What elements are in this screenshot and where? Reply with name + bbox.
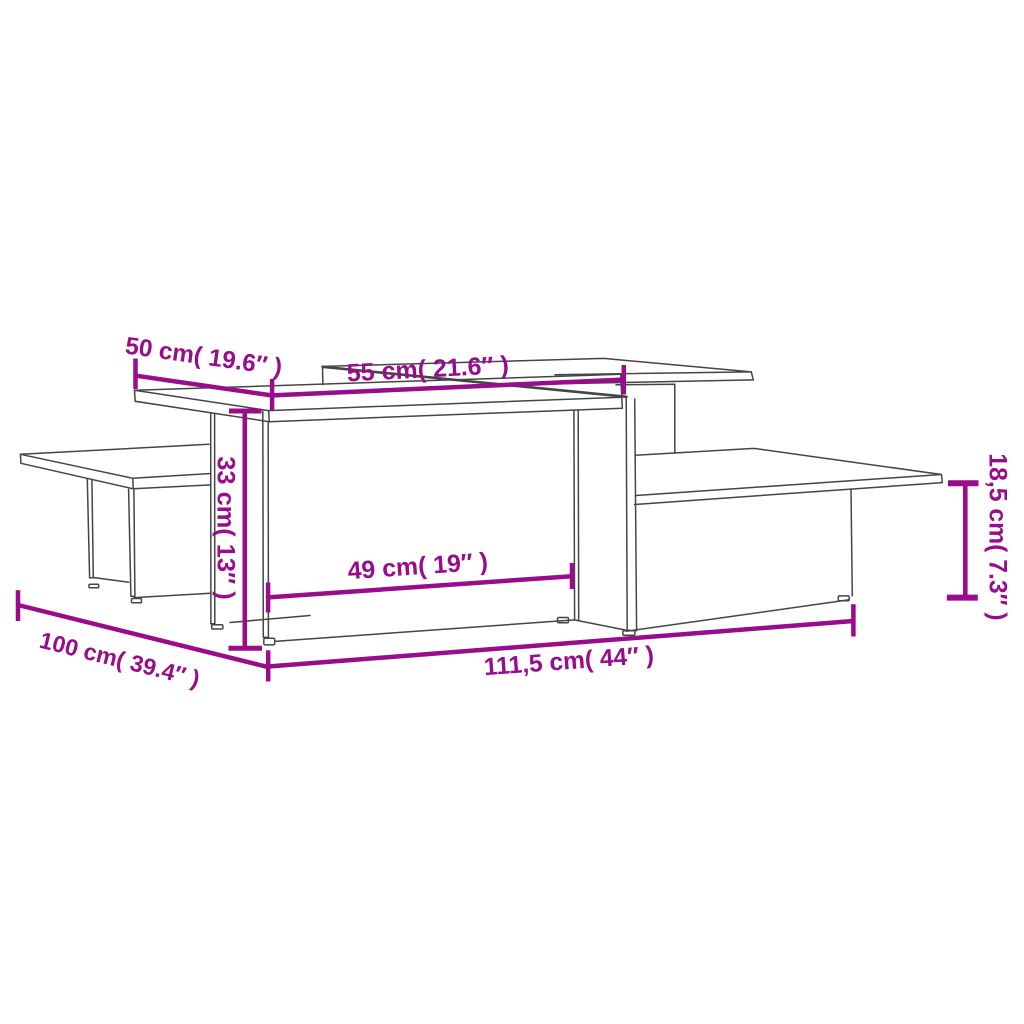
svg-text:18,5 cm( 7.3″ ): 18,5 cm( 7.3″ ) [984,453,1011,620]
svg-text:33 cm( 13″ ): 33 cm( 13″ ) [212,456,240,599]
